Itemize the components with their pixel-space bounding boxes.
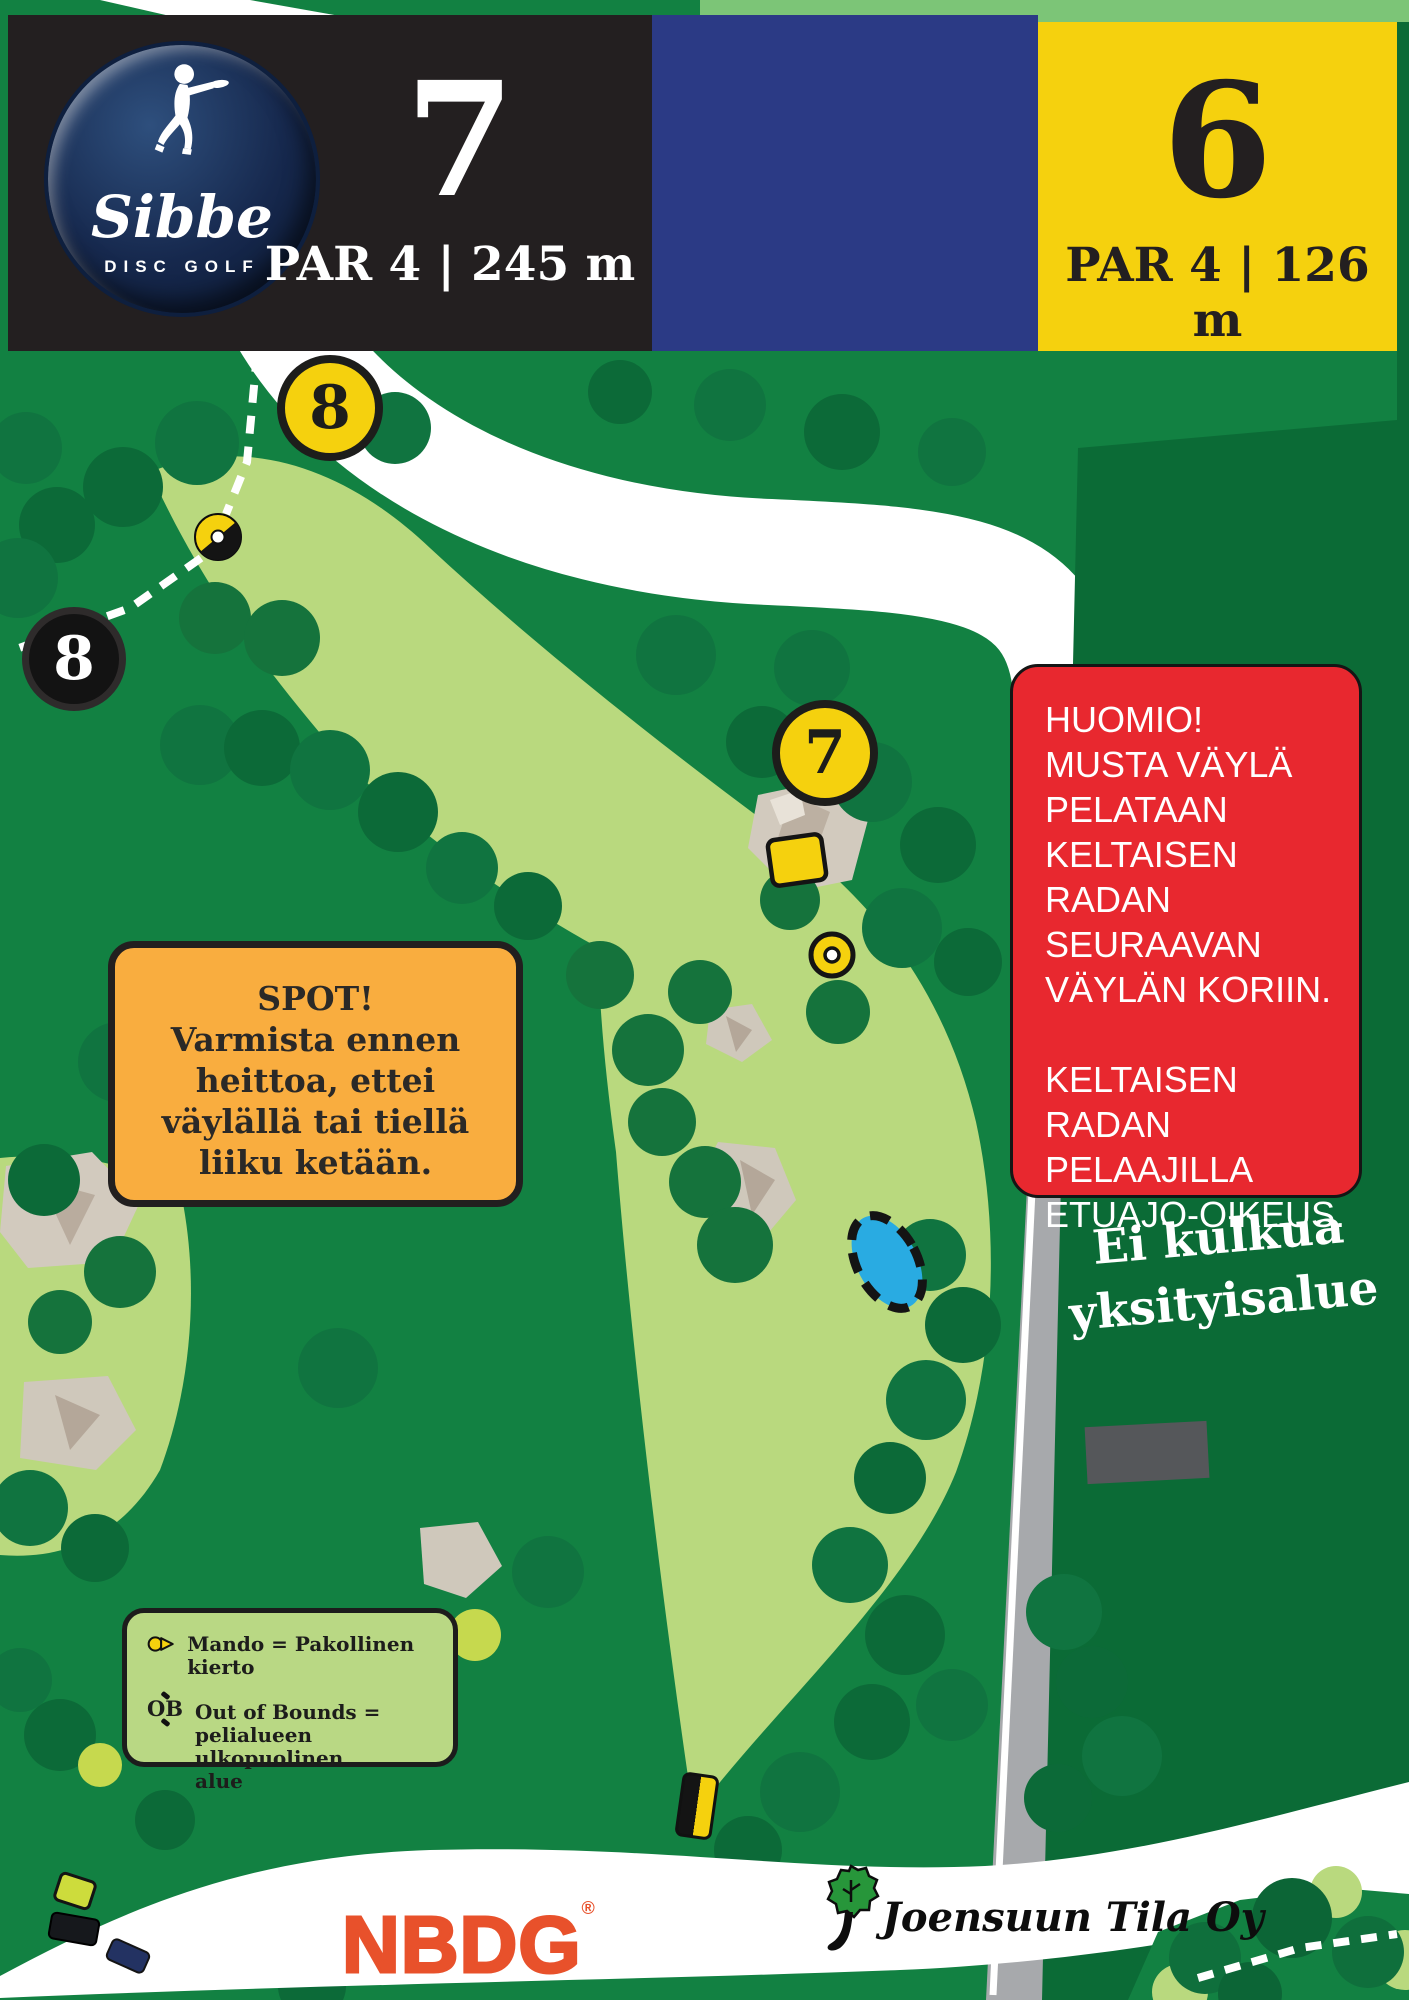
tree-icon [694, 369, 766, 441]
marker-tee-yellow-7: 7 [772, 700, 878, 806]
header-panel-blue [652, 15, 1038, 351]
tree-icon [760, 1752, 840, 1832]
partner-name: Joensuun Tila Oy [882, 1896, 1264, 1966]
tree-icon [669, 1146, 741, 1218]
nbdg-logo: NBDG® [342, 1868, 595, 1985]
tree-icon [916, 1669, 988, 1741]
tee-pad-yellow-icon [767, 833, 827, 886]
hole-info-yellow: PAR 4 | 126 m [1038, 238, 1397, 348]
tree-icon [1082, 1716, 1162, 1796]
tree-icon [1026, 1574, 1102, 1650]
tree-icon [61, 1514, 129, 1582]
tree-icon [1056, 1646, 1128, 1718]
tree-icon [494, 872, 562, 940]
tree-icon [8, 1144, 80, 1216]
building [1085, 1421, 1210, 1484]
tree-icon [244, 600, 320, 676]
tree-icon [1024, 1764, 1092, 1832]
tree-icon [135, 1790, 195, 1850]
tree-icon [918, 418, 986, 486]
mando-icon [147, 1633, 175, 1655]
tree-icon [886, 1360, 966, 1440]
tree-icon [512, 1536, 584, 1608]
hole-number-black: 7 [268, 61, 652, 221]
legend-box: Mando = Pakollinen kierto OB Out of Boun… [122, 1608, 458, 1767]
tree-icon [290, 730, 370, 810]
tree-icon [862, 888, 942, 968]
disc-thrower-icon [122, 61, 242, 181]
legend-ob-text: Out of Bounds = pelialueen ulkopuolinen … [195, 1701, 437, 1793]
tree-icon [812, 1527, 888, 1603]
tree-icon [925, 1287, 1001, 1363]
tree-icon [224, 710, 300, 786]
tree-icon [155, 401, 239, 485]
basket-yellow-icon [811, 934, 853, 976]
huomio-notice-box: HUOMIO! MUSTA VÄYLÄ PELATAAN KELTAISEN R… [1010, 664, 1362, 1198]
tree-icon [900, 807, 976, 883]
partner-logo: Joensuun Tila Oy [822, 1862, 1264, 1966]
tree-icon [28, 1290, 92, 1354]
tree-icon [83, 447, 163, 527]
hole-info-black: PAR 4 | 245 m [258, 237, 642, 292]
spot-warning-box: SPOT! Varmista ennen heittoa, ettei väyl… [108, 941, 523, 1207]
tree-icon [774, 630, 850, 706]
marker-tee-black-8: 8 [22, 607, 126, 711]
tree-icon [426, 832, 498, 904]
tree-icon [854, 1442, 926, 1514]
hole-number-yellow: 6 [1038, 62, 1397, 222]
tree-icon [668, 960, 732, 1024]
tree-icon [179, 582, 251, 654]
nbdg-text: NBDG [342, 1900, 582, 1989]
tree-icon [298, 1328, 378, 1408]
partner-tree-icon [822, 1862, 880, 1966]
tree-icon [566, 941, 634, 1009]
tree-icon [628, 1088, 696, 1156]
tree-icon [84, 1236, 156, 1308]
ob-label: OB [147, 1698, 183, 1720]
tree-icon [865, 1595, 945, 1675]
tree-icon [358, 772, 438, 852]
tee-pad-hole7-icon [676, 1773, 718, 1839]
tree-icon [588, 360, 652, 424]
trademark-symbol: ® [582, 1898, 595, 1918]
header-panel-yellow-course: 6 PAR 4 | 126 m [1038, 22, 1397, 351]
marker-next-tee-yellow-8: 8 [277, 355, 383, 461]
tree-icon [636, 615, 716, 695]
tree-icon [834, 1684, 910, 1760]
ob-icon: OB [147, 1693, 183, 1725]
header-panel-black-course: Sibbe DISC GOLF 7 PAR 4 | 245 m [8, 15, 652, 351]
tree-icon [934, 928, 1002, 996]
legend-ob-row: OB Out of Bounds = pelialueen ulkopuolin… [147, 1701, 437, 1793]
legend-mando-row: Mando = Pakollinen kierto [147, 1633, 437, 1679]
tree-icon [806, 980, 870, 1044]
tree-icon [697, 1207, 773, 1283]
tree-icon [804, 394, 880, 470]
legend-mando-text: Mando = Pakollinen kierto [187, 1633, 437, 1679]
tree-icon [612, 1014, 684, 1086]
